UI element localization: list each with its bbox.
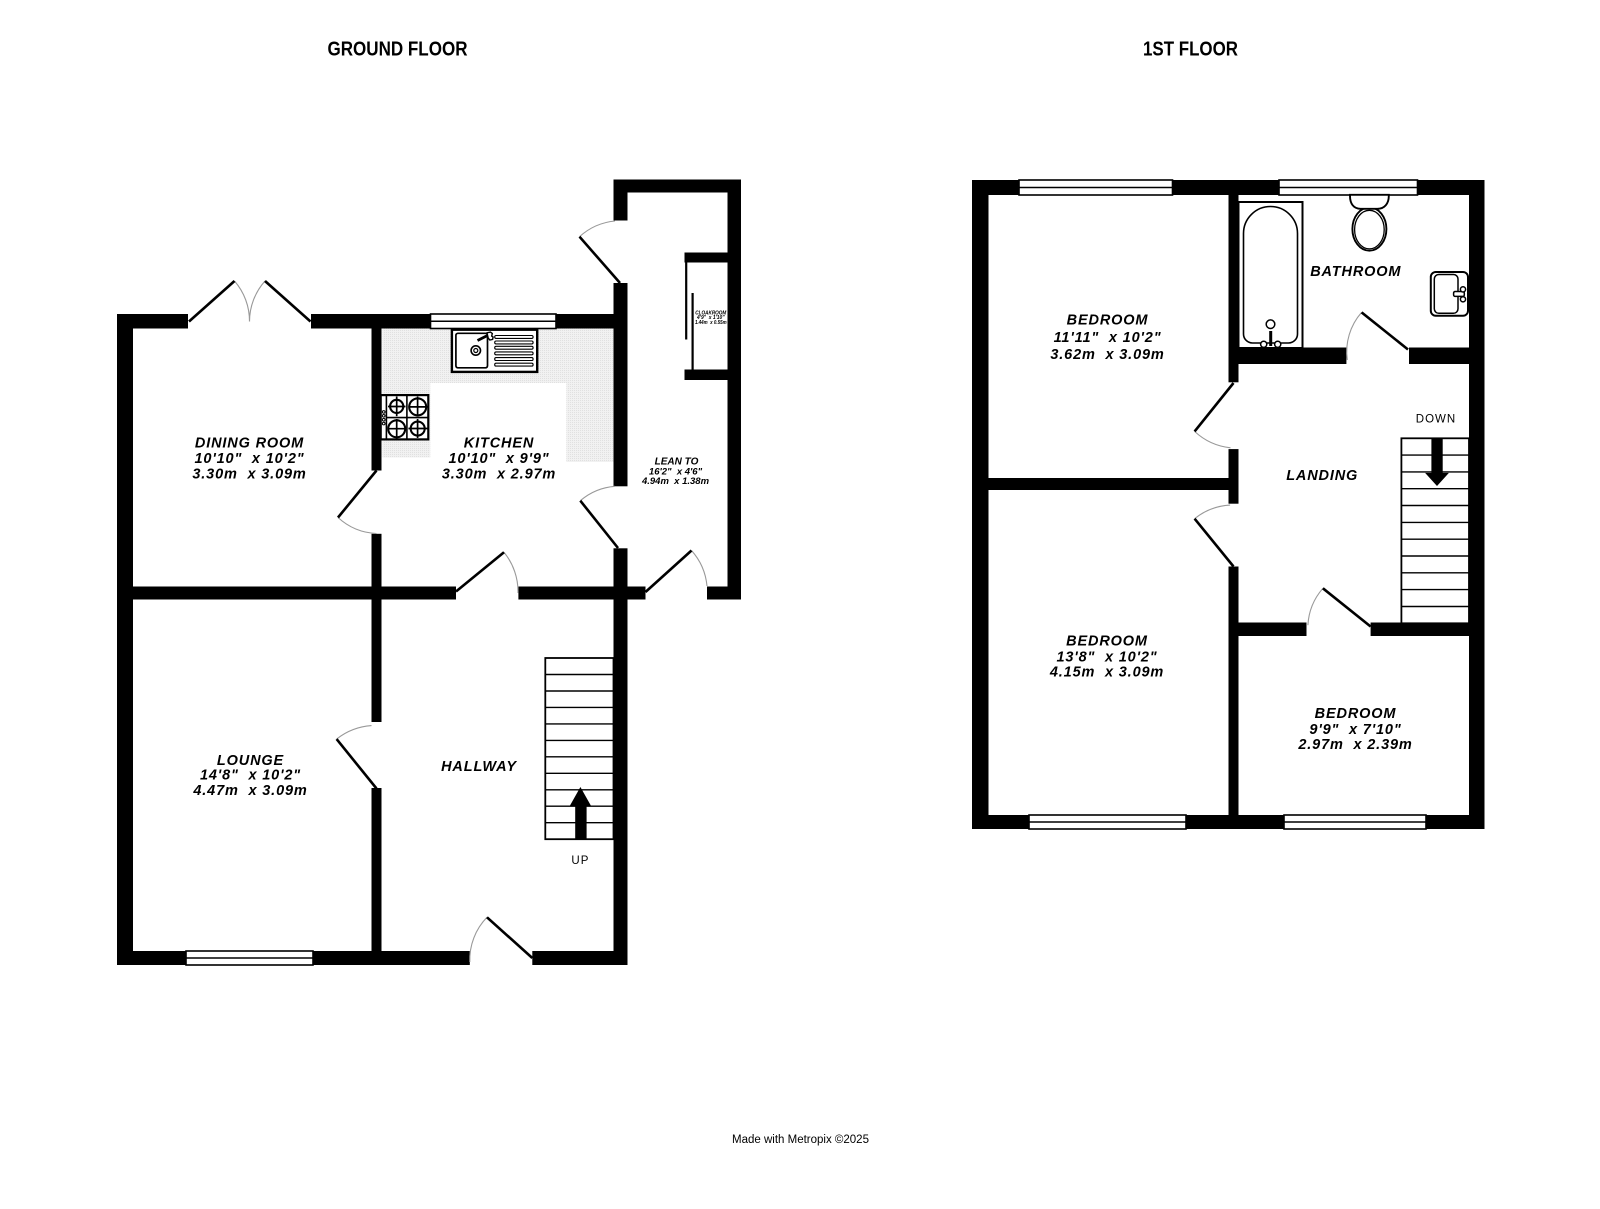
svg-text:1ST FLOOR: 1ST FLOOR: [1143, 38, 1238, 61]
svg-text:4.94m x 1.38m: 4.94m x 1.38m: [641, 476, 710, 487]
svg-text:2.97m x 2.39m: 2.97m x 2.39m: [1297, 737, 1412, 753]
svg-text:3.62m x 3.09m: 3.62m x 3.09m: [1050, 347, 1164, 363]
svg-text:9'9" x 7'10": 9'9" x 7'10": [1309, 722, 1401, 738]
svg-text:13'8" x 10'2": 13'8" x 10'2": [1056, 649, 1157, 665]
svg-text:10'10" x 10'2": 10'10" x 10'2": [195, 451, 305, 467]
svg-text:10'10" x 9'9": 10'10" x 9'9": [448, 451, 549, 467]
svg-text:GROUND FLOOR: GROUND FLOOR: [328, 38, 468, 61]
svg-text:4.47m x 3.09m: 4.47m x 3.09m: [192, 783, 307, 799]
svg-text:LANDING: LANDING: [1286, 468, 1358, 484]
svg-text:11'11" x 10'2": 11'11" x 10'2": [1054, 330, 1162, 346]
svg-text:DOWN: DOWN: [1416, 413, 1456, 425]
svg-text:UP: UP: [571, 855, 589, 867]
svg-text:3.30m x 2.97m: 3.30m x 2.97m: [442, 467, 556, 483]
svg-text:BATHROOM: BATHROOM: [1310, 264, 1401, 280]
svg-text:DINING ROOM: DINING ROOM: [195, 436, 304, 452]
svg-text:KITCHEN: KITCHEN: [464, 436, 534, 452]
svg-text:14'8" x 10'2": 14'8" x 10'2": [200, 768, 301, 784]
svg-text:3.30m x 3.09m: 3.30m x 3.09m: [192, 467, 306, 483]
svg-text:Made with Metropix ©2025: Made with Metropix ©2025: [732, 1134, 869, 1146]
svg-text:BEDROOM: BEDROOM: [1067, 313, 1149, 329]
svg-text:1.44m x 0.55m: 1.44m x 0.55m: [695, 320, 727, 326]
svg-text:4.15m x 3.09m: 4.15m x 3.09m: [1049, 665, 1164, 681]
svg-text:BEDROOM: BEDROOM: [1066, 633, 1148, 649]
svg-text:BEDROOM: BEDROOM: [1315, 706, 1397, 722]
svg-text:HALLWAY: HALLWAY: [441, 759, 517, 775]
